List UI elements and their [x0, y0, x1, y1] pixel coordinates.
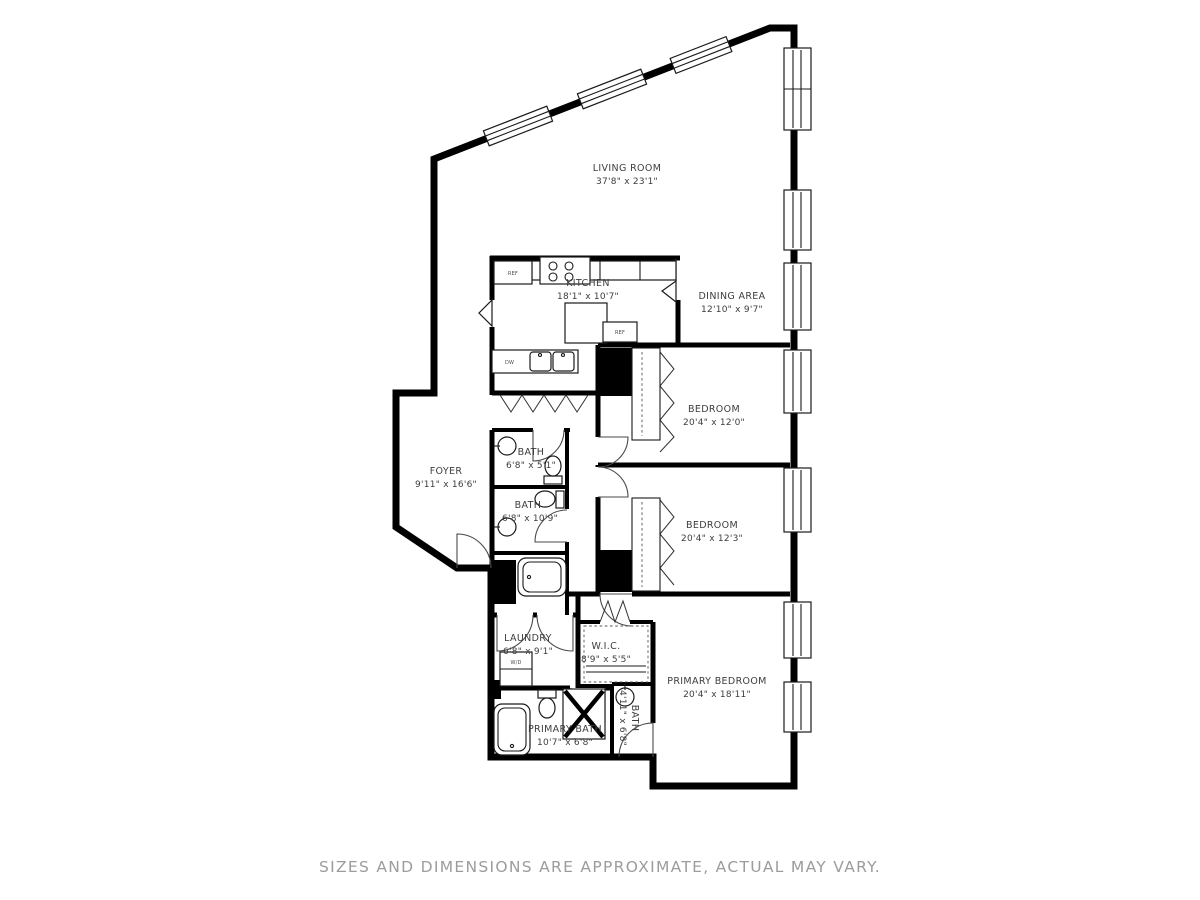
- window: [784, 263, 811, 330]
- primary-bathtub: [494, 704, 530, 755]
- closets: [584, 348, 660, 682]
- kitchen-foyer-door-wedge: [479, 300, 492, 326]
- kitchen-sink-counter: DW: [492, 350, 578, 373]
- bedroom2-closet-bifold: [660, 500, 674, 585]
- room-label-foyer: FOYER 9'11" x 16'6": [415, 466, 477, 490]
- svg-text:6'8" x 9'1": 6'8" x 9'1": [503, 647, 553, 657]
- svg-text:9'11" x 16'6": 9'11" x 16'6": [415, 480, 477, 490]
- room-label-kitchen: KITCHEN 18'1" x 10'7": [557, 278, 619, 302]
- window: [784, 682, 811, 732]
- closet-block-bottom: [598, 550, 632, 592]
- svg-text:20'4" x 12'3": 20'4" x 12'3": [681, 534, 743, 544]
- bedroom2-closet: [632, 498, 660, 591]
- window: [784, 48, 811, 130]
- laundry-fixtures: W/D: [500, 652, 532, 686]
- dishwasher-label: DW: [505, 360, 514, 366]
- closet-block-top: [598, 348, 632, 396]
- foyer-door: [457, 534, 491, 568]
- svg-text:4'11" x 6'8": 4'11" x 6'8": [617, 690, 627, 746]
- washer-dryer-label: W/D: [510, 660, 521, 666]
- tub-room-block: [490, 560, 516, 604]
- window: [784, 602, 811, 658]
- bath1-sink: [498, 437, 516, 455]
- refrigerator-label: REF: [508, 271, 518, 277]
- svg-text:BATH: BATH: [515, 500, 542, 511]
- svg-text:6'8" x 5'1": 6'8" x 5'1": [506, 461, 556, 471]
- room-label-bedroom-2: BEDROOM 20'4" x 12'3": [681, 520, 743, 544]
- svg-text:37'8" x 23'1": 37'8" x 23'1": [596, 177, 658, 187]
- window: [784, 350, 811, 413]
- window: [577, 69, 646, 109]
- svg-text:8'9" x 5'5": 8'9" x 5'5": [581, 655, 631, 665]
- room-label-bedroom-1: BEDROOM 20'4" x 12'0": [683, 404, 745, 428]
- svg-text:BATH: BATH: [518, 447, 545, 458]
- bedroom1-closet-bifold: [660, 352, 674, 452]
- svg-text:LIVING ROOM: LIVING ROOM: [593, 163, 662, 174]
- kitchen-island: [565, 303, 607, 343]
- bedroom1-closet: [632, 348, 660, 440]
- window: [784, 468, 811, 532]
- hall-bathtub: [518, 558, 566, 596]
- svg-text:6'8" x 10'9": 6'8" x 10'9": [502, 514, 558, 524]
- kitchen-dining-door-wedge-2: [662, 281, 676, 302]
- svg-text:BATH: BATH: [629, 705, 640, 732]
- refrigerator-2-label: REF: [615, 330, 625, 336]
- svg-text:PRIMARY BATH: PRIMARY BATH: [528, 724, 602, 735]
- svg-text:BEDROOM: BEDROOM: [686, 520, 738, 531]
- svg-text:18'1" x 10'7": 18'1" x 10'7": [557, 292, 619, 302]
- svg-text:DINING AREA: DINING AREA: [699, 291, 766, 302]
- windows-top-diagonal: [483, 37, 731, 146]
- svg-text:10'7" x 6'8": 10'7" x 6'8": [537, 738, 593, 748]
- window: [670, 37, 732, 74]
- svg-text:KITCHEN: KITCHEN: [566, 278, 610, 289]
- svg-text:20'4" x 18'11": 20'4" x 18'11": [683, 690, 751, 700]
- laundry-corner-block: [488, 680, 501, 699]
- floor-plan-drawing: REF REF DW: [0, 0, 1200, 900]
- room-label-primary-bedroom: PRIMARY BEDROOM 20'4" x 18'11": [667, 676, 766, 700]
- svg-text:PRIMARY BEDROOM: PRIMARY BEDROOM: [667, 676, 766, 687]
- svg-text:20'4" x 12'0": 20'4" x 12'0": [683, 418, 745, 428]
- wic-bifold: [600, 601, 630, 622]
- kitchen-fixtures: REF REF DW: [492, 257, 676, 373]
- svg-text:FOYER: FOYER: [430, 466, 463, 477]
- window: [483, 106, 552, 146]
- foyer-closet-bifold: [500, 395, 588, 412]
- primary-toilet: [538, 690, 556, 718]
- room-label-wic: W.I.C. 8'9" x 5'5": [581, 641, 631, 665]
- room-labels: LIVING ROOM 37'8" x 23'1" KITCHEN 18'1" …: [415, 163, 767, 748]
- svg-text:LAUNDRY: LAUNDRY: [504, 633, 552, 644]
- room-label-living-room: LIVING ROOM 37'8" x 23'1": [593, 163, 662, 187]
- room-label-laundry: LAUNDRY 6'8" x 9'1": [503, 633, 553, 657]
- disclaimer-text: SIZES AND DIMENSIONS ARE APPROXIMATE, AC…: [0, 858, 1200, 876]
- svg-text:W.I.C.: W.I.C.: [592, 641, 621, 652]
- room-label-dining-area: DINING AREA 12'10" x 9'7": [699, 291, 766, 315]
- floor-plan-page: REF REF DW: [0, 0, 1200, 900]
- window: [784, 190, 811, 250]
- svg-text:BEDROOM: BEDROOM: [688, 404, 740, 415]
- wic-shelving-outline: [584, 626, 648, 682]
- bedroom2-door: [598, 467, 628, 497]
- svg-text:12'10" x 9'7": 12'10" x 9'7": [701, 305, 763, 315]
